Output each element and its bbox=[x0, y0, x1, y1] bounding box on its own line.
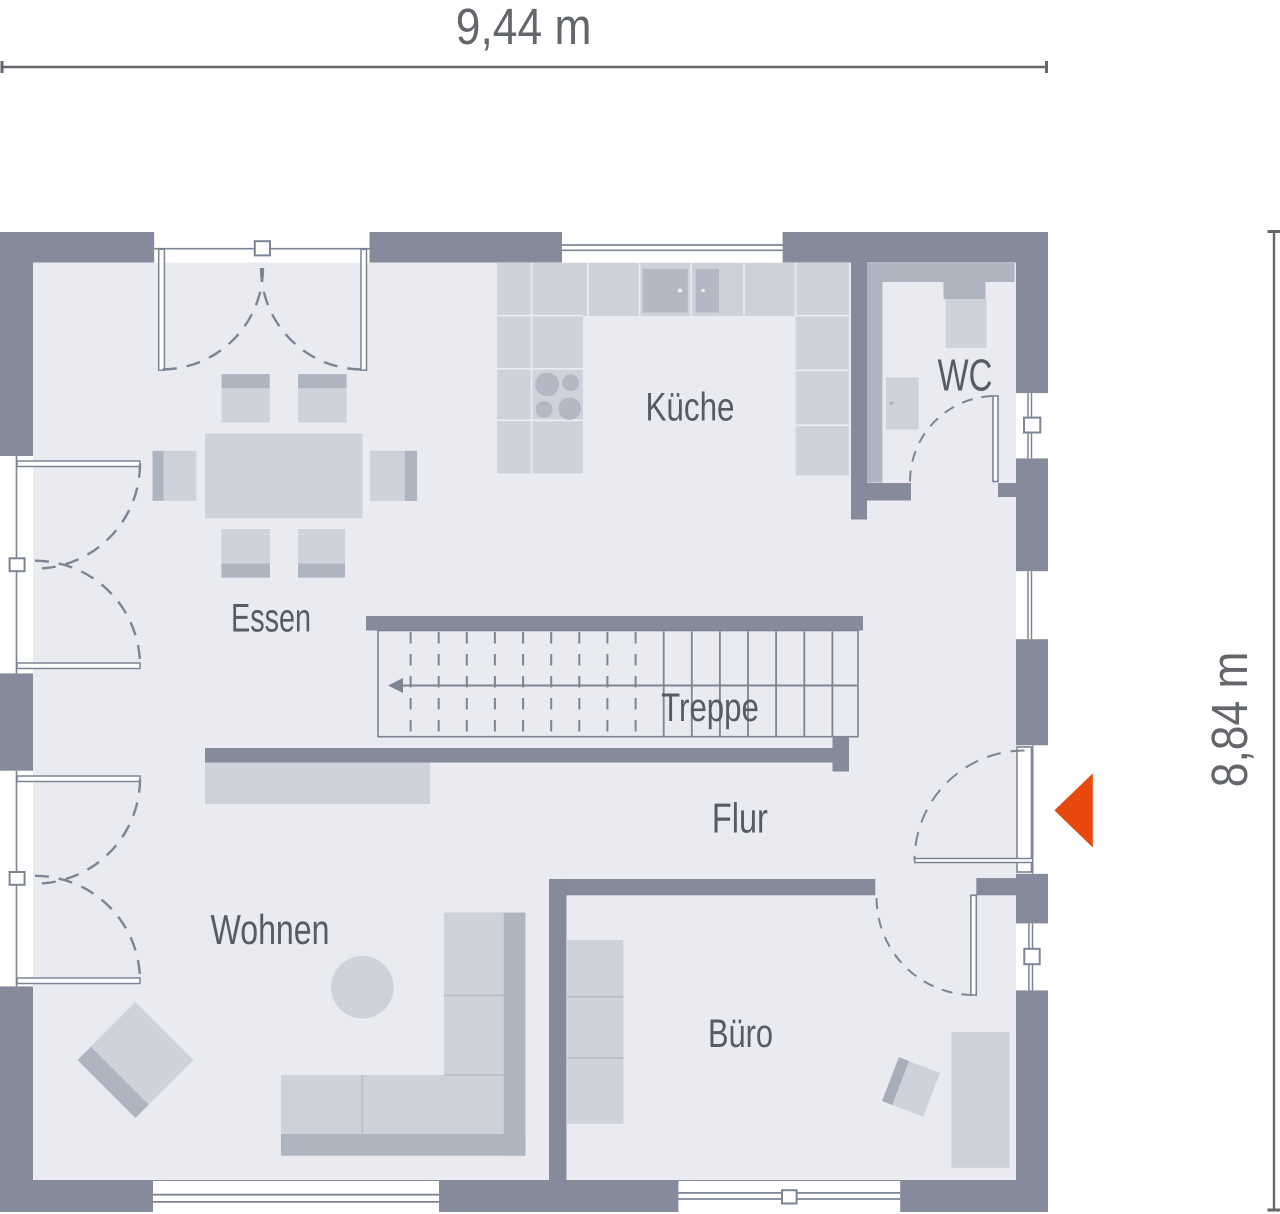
svg-text:9,44 m: 9,44 m bbox=[456, 0, 592, 55]
svg-text:Wohnen: Wohnen bbox=[210, 906, 329, 953]
svg-text:8,84 m: 8,84 m bbox=[1201, 652, 1258, 788]
svg-text:WC: WC bbox=[938, 350, 993, 401]
svg-text:Flur: Flur bbox=[712, 795, 768, 842]
svg-text:Essen: Essen bbox=[231, 597, 311, 641]
svg-text:Büro: Büro bbox=[708, 1012, 773, 1056]
svg-text:Treppe: Treppe bbox=[661, 686, 759, 730]
svg-text:Küche: Küche bbox=[645, 386, 734, 430]
